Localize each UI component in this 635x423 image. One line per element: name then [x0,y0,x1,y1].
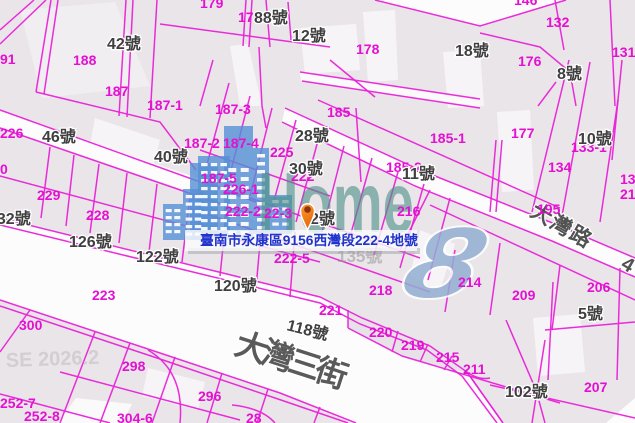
svg-text:226: 226 [0,125,24,141]
svg-text:221: 221 [319,302,343,318]
svg-text:臺南市永康區9156西灣段222-4地號: 臺南市永康區9156西灣段222-4地號 [200,232,418,248]
svg-text:30號: 30號 [289,159,323,178]
svg-text:18號: 18號 [455,41,489,60]
svg-text:300: 300 [19,317,43,333]
svg-text:214: 214 [458,274,482,290]
svg-text:8號: 8號 [557,64,582,83]
svg-text:134: 134 [548,159,572,175]
svg-text:11號: 11號 [402,164,435,183]
svg-text:120號: 120號 [214,276,257,295]
svg-text:22-3: 22-3 [264,205,292,221]
svg-text:252-8: 252-8 [24,408,60,423]
svg-text:122號: 122號 [136,247,179,266]
svg-text:185-1: 185-1 [430,130,466,146]
svg-text:12號: 12號 [292,26,326,45]
svg-text:177: 177 [511,125,535,141]
svg-text:211: 211 [463,361,486,377]
svg-text:222-2: 222-2 [225,203,261,219]
svg-text:28號: 28號 [295,126,329,145]
svg-text:207: 207 [584,379,608,395]
svg-text:296: 296 [198,388,222,404]
svg-text:13: 13 [620,171,635,187]
svg-text:132號: 132號 [0,209,31,228]
svg-text:188: 188 [73,52,97,68]
svg-text:91: 91 [0,51,16,67]
svg-text:219: 219 [401,337,425,353]
svg-text:42號: 42號 [107,34,141,53]
svg-text:46號: 46號 [42,127,76,146]
svg-text:195: 195 [537,201,561,217]
svg-text:10號: 10號 [578,129,612,148]
svg-text:146: 146 [514,0,538,8]
svg-text:SE 2026.2: SE 2026.2 [5,347,99,372]
svg-text:176: 176 [518,53,542,69]
svg-text:226-1: 226-1 [223,181,259,197]
svg-text:225: 225 [270,144,294,160]
svg-text:0: 0 [0,161,8,177]
svg-text:28: 28 [246,410,262,423]
svg-text:218: 218 [369,282,393,298]
svg-text:304-6: 304-6 [117,410,153,423]
svg-text:187: 187 [105,83,129,99]
svg-text:40號: 40號 [154,147,188,166]
svg-text:131: 131 [612,44,635,60]
svg-text:21: 21 [620,186,635,202]
svg-text:215: 215 [436,349,460,365]
svg-text:126號: 126號 [69,232,112,251]
svg-text:102號: 102號 [505,382,548,401]
svg-text:185: 185 [327,104,351,120]
svg-text:179: 179 [200,0,224,11]
svg-text:220: 220 [369,324,393,340]
svg-text:229: 229 [37,187,61,203]
svg-text:187-1: 187-1 [147,97,183,113]
svg-text:187-2: 187-2 [184,135,220,151]
svg-text:132: 132 [546,14,570,30]
svg-text:209: 209 [512,287,536,303]
svg-text:187-3: 187-3 [215,101,251,117]
svg-text:206: 206 [587,279,611,295]
svg-text:187-4: 187-4 [223,135,259,151]
svg-text:228: 228 [86,207,110,223]
svg-text:178: 178 [356,41,380,57]
svg-text:223: 223 [92,287,116,303]
svg-text:5號: 5號 [578,304,603,323]
svg-text:88號: 88號 [254,8,288,27]
svg-text:216: 216 [397,203,421,219]
svg-text:298: 298 [122,358,146,374]
